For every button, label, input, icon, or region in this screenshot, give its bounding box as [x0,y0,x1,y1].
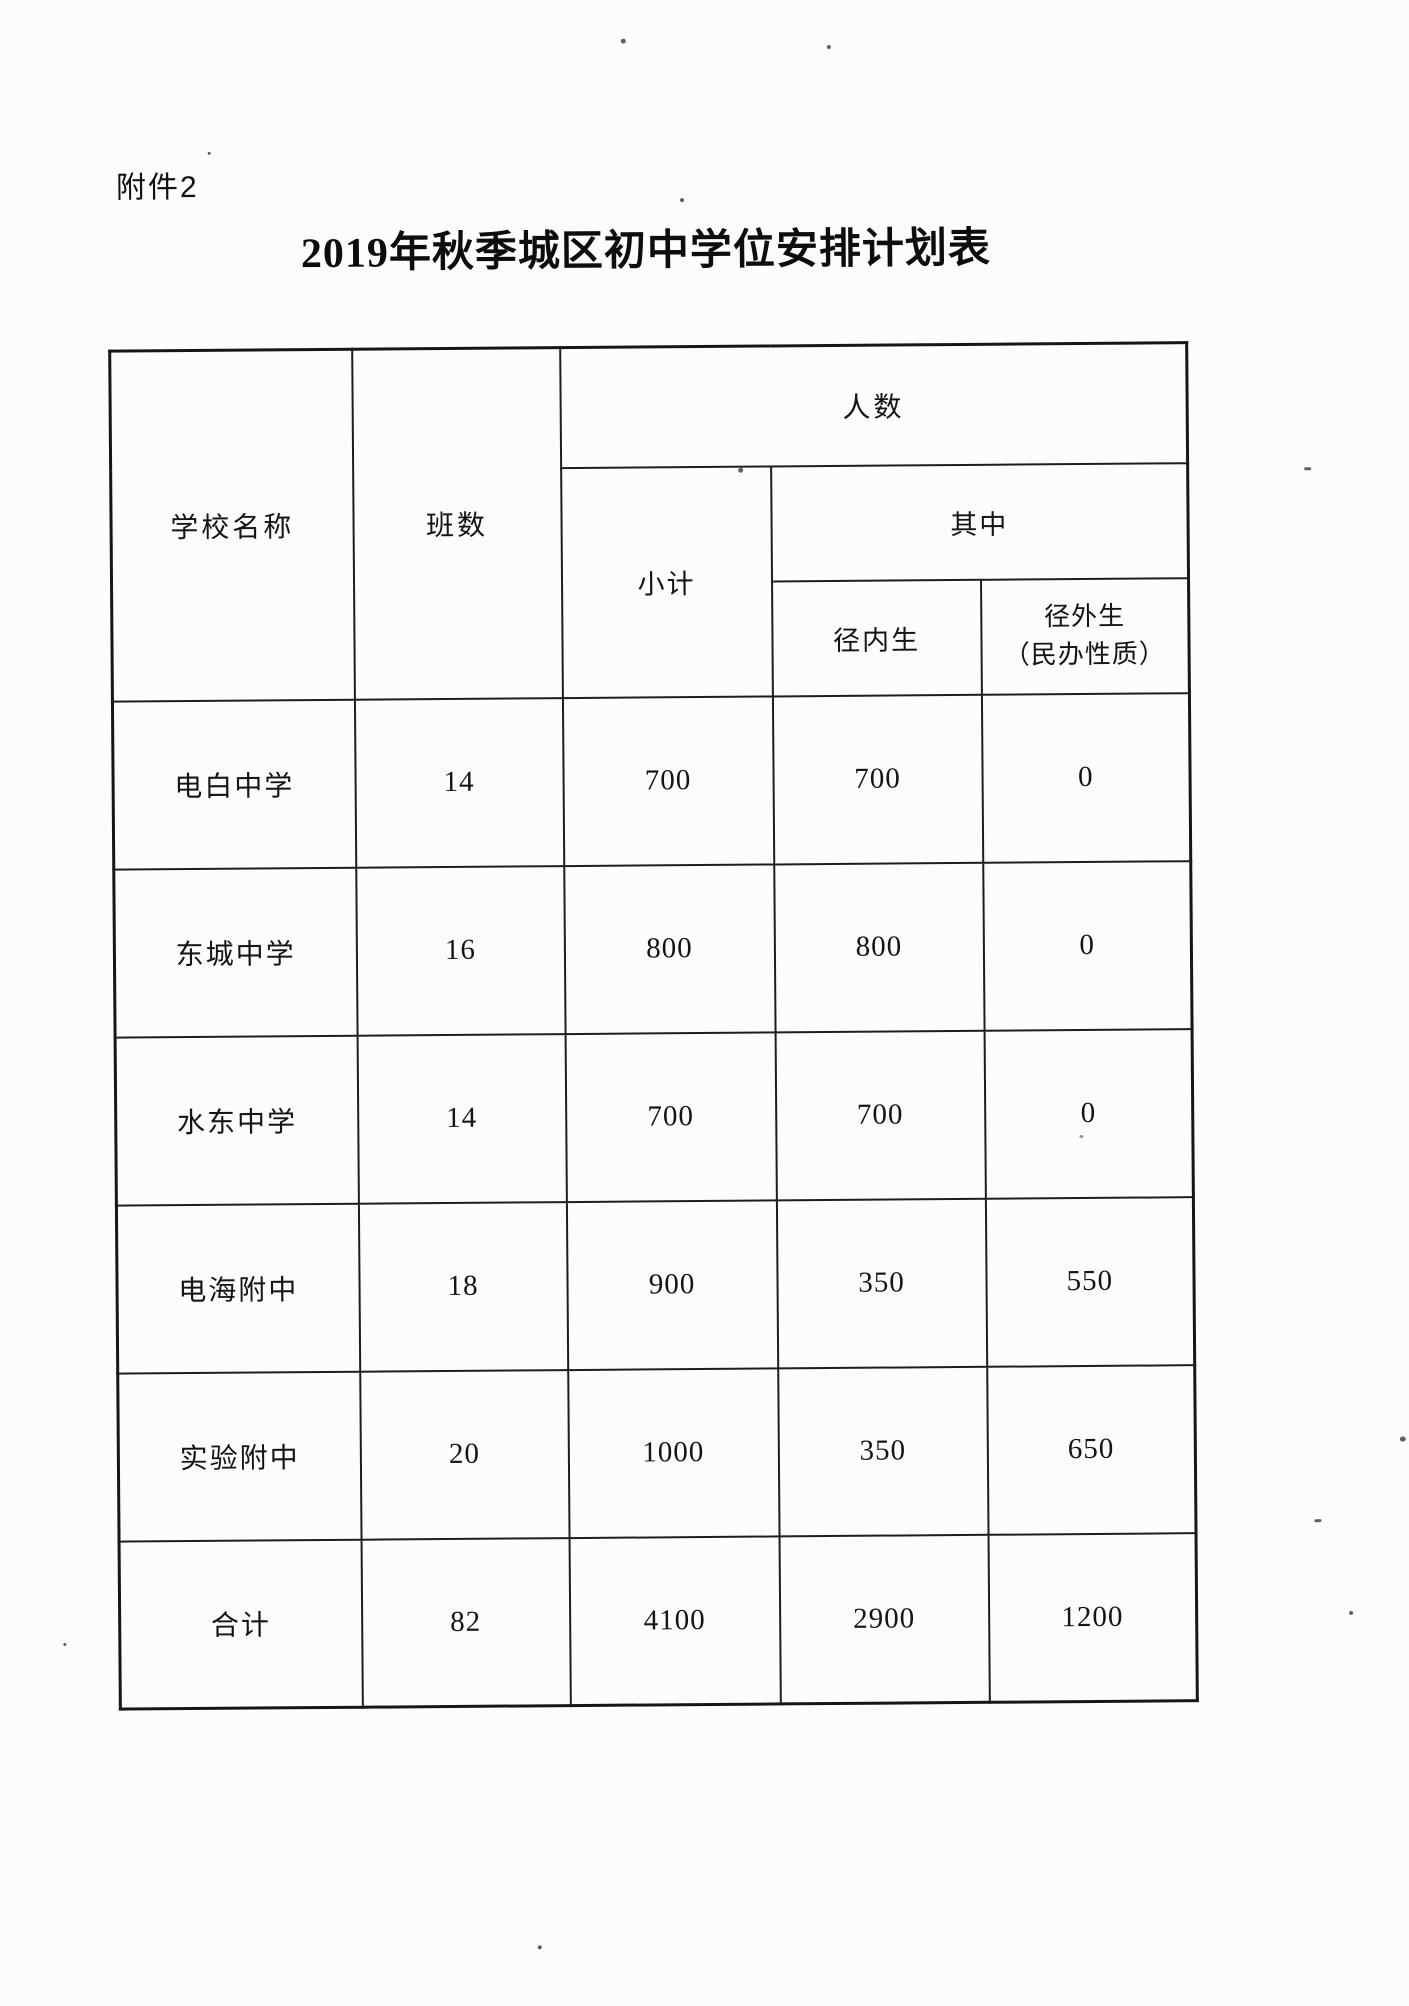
cell-subtotal: 800 [564,864,775,1034]
cell-out-district: 650 [987,1365,1196,1535]
cell-out-district: 0 [984,1029,1193,1199]
header-out-district-line1: 径外生 [1044,602,1125,632]
cell-subtotal: 700 [562,696,773,866]
table-row-total: 合计 82 4100 2900 1200 [119,1533,1197,1709]
cell-school: 电白中学 [112,699,355,869]
table-row: 电海附中 18 900 350 550 [116,1197,1194,1373]
cell-in-district: 800 [774,862,984,1032]
attachment-label: 附件2 [116,162,199,207]
header-people-count: 人数 [560,343,1188,468]
cell-classes: 18 [358,1202,567,1372]
cell-school: 合计 [119,1539,362,1709]
cell-in-district: 700 [772,694,982,864]
header-in-district: 径内生 [772,579,982,696]
header-out-district: 径外生 （民办性质） [981,578,1190,695]
cell-out-district: 550 [985,1197,1194,1367]
scan-speck [208,152,211,155]
table-row: 电白中学 14 700 700 0 [112,693,1190,869]
scan-speck [63,1643,66,1646]
scan-speck [1314,1519,1321,1522]
scan-speck [738,468,743,473]
cell-out-district: 0 [981,693,1190,863]
header-out-district-line2: （民办性质） [1004,639,1166,669]
cell-subtotal: 900 [566,1200,777,1370]
cell-classes: 14 [357,1034,566,1204]
scan-speck [680,198,684,202]
table-row: 实验附中 20 1000 350 650 [118,1365,1196,1541]
cell-school: 实验附中 [118,1371,361,1541]
cell-classes: 82 [361,1538,570,1708]
header-class-count: 班数 [352,348,563,700]
cell-in-district: 2900 [779,1534,989,1704]
header-subtotal: 小计 [561,466,773,698]
scan-speck [538,1945,542,1949]
cell-subtotal: 700 [565,1032,776,1202]
scan-speck [1304,467,1311,470]
scan-speck [1079,1135,1083,1138]
header-of-which: 其中 [771,463,1189,581]
cell-subtotal: 4100 [569,1536,780,1706]
scan-speck [1400,1437,1406,1442]
cell-in-district: 350 [776,1198,986,1368]
page-title: 2019年秋季城区初中学位安排计划表 [107,212,1184,281]
scan-speck [827,45,831,49]
cell-out-district: 0 [983,861,1192,1031]
cell-classes: 14 [354,698,563,868]
cell-school: 东城中学 [114,867,357,1037]
cell-in-district: 350 [778,1366,988,1536]
scan-speck [1349,1611,1353,1615]
scan-speck [621,39,626,44]
cell-school: 水东中学 [115,1035,358,1205]
cell-subtotal: 1000 [568,1368,779,1538]
table-row: 水东中学 14 700 700 0 [115,1029,1193,1205]
scanned-document-page: 附件2 2019年秋季城区初中学位安排计划表 学校名称 班数 人数 小计 其中 … [0,0,1409,2006]
scan-artifacts [0,0,1401,6]
table-row: 东城中学 16 800 800 0 [114,861,1192,1037]
cell-in-district: 700 [775,1030,985,1200]
cell-classes: 16 [356,866,565,1036]
cell-out-district: 1200 [988,1533,1197,1703]
cell-school: 电海附中 [116,1203,359,1373]
enrollment-plan-table: 学校名称 班数 人数 小计 其中 径内生 径外生 （民办性质） 电白中学 [108,341,1199,1710]
header-school-name: 学校名称 [110,349,355,701]
cell-classes: 20 [360,1370,569,1540]
